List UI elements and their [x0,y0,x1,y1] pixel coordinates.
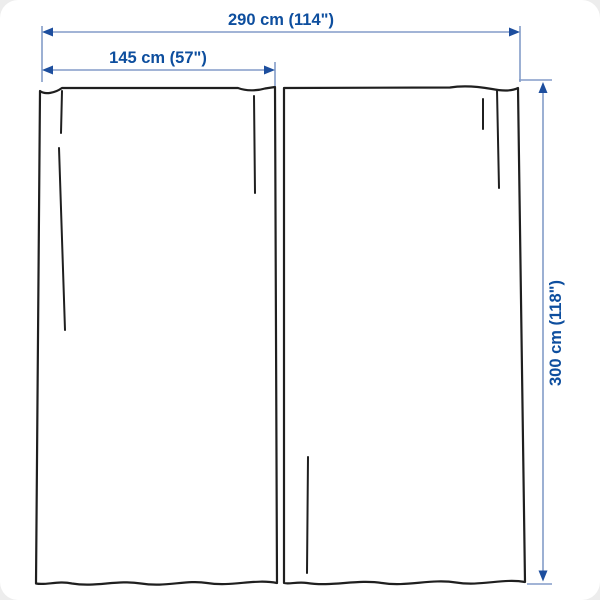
height-label: 300 cm (118") [547,280,565,386]
arrowhead-down-icon [539,571,548,582]
left-curtain-outline [36,87,277,585]
total-width-label: 290 cm (114") [228,11,334,29]
diagram-svg: 290 cm (114") 145 cm (57") 300 cm (118") [0,0,600,600]
height-dimension: 300 cm (118") [519,80,565,584]
right-curtain-panel [284,86,525,584]
arrowhead-up-icon [539,82,548,93]
right-curtain-outline [284,86,525,584]
total-width-dimension: 290 cm (114") [42,11,520,82]
arrowhead-left-icon [42,28,53,37]
panel-width-dimension: 145 cm (57") [42,49,275,86]
arrowhead-right-icon [264,66,275,75]
left-curtain-panel [36,87,277,585]
curtain-dimension-diagram: 290 cm (114") 145 cm (57") 300 cm (118") [0,0,600,600]
arrowhead-left-icon [42,66,53,75]
arrowhead-right-icon [509,28,520,37]
panel-width-label: 145 cm (57") [109,49,207,67]
